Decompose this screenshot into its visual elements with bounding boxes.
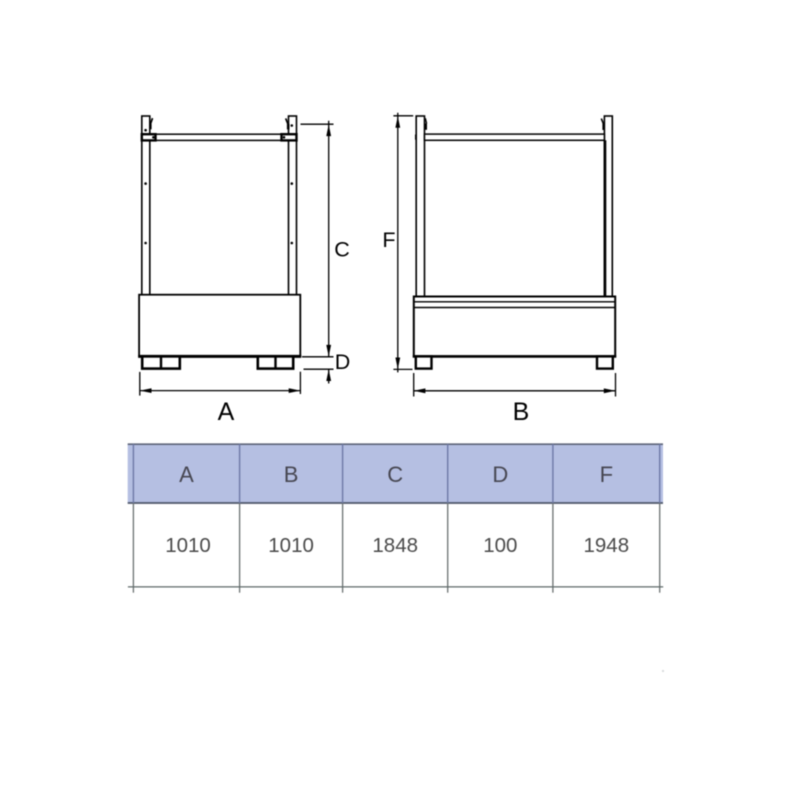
svg-text:C: C [387,462,403,487]
svg-text:D: D [492,462,508,487]
svg-text:100: 100 [483,534,517,557]
svg-text:F: F [600,462,613,487]
svg-text:A: A [218,398,235,426]
svg-text:1848: 1848 [372,534,418,557]
svg-text:1010: 1010 [165,534,211,557]
svg-text:B: B [513,398,530,426]
svg-text:A: A [179,462,194,487]
svg-text:C: C [334,237,350,261]
svg-text:F: F [382,228,395,252]
svg-text:D: D [335,350,351,374]
svg-text:B: B [284,462,299,487]
svg-text:1010: 1010 [268,534,314,557]
svg-text:1948: 1948 [583,534,629,557]
